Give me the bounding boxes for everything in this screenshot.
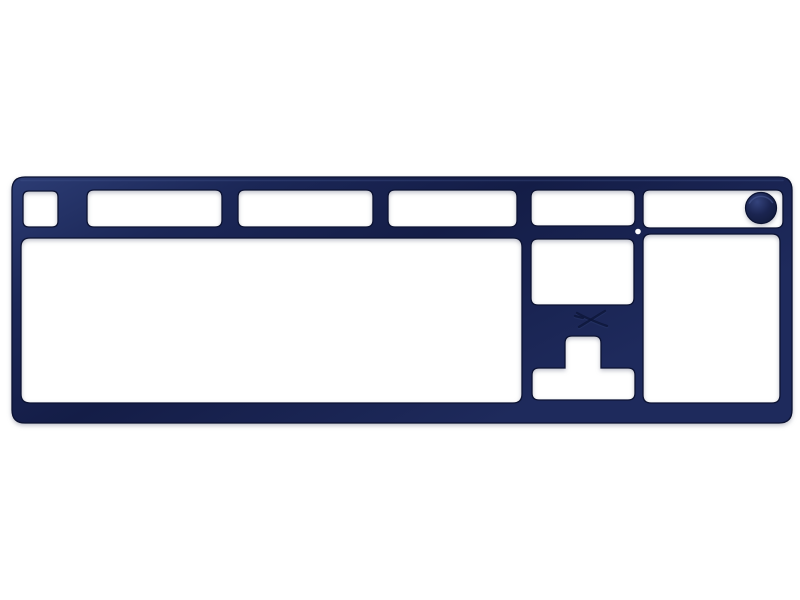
keyboard-frame-illustration xyxy=(0,0,800,600)
frame-silhouette xyxy=(12,177,792,423)
keyboard-top-frame xyxy=(12,177,792,423)
volume-wheel xyxy=(746,193,777,224)
product-photo-scene xyxy=(0,0,800,600)
status-led-hole xyxy=(635,229,641,235)
